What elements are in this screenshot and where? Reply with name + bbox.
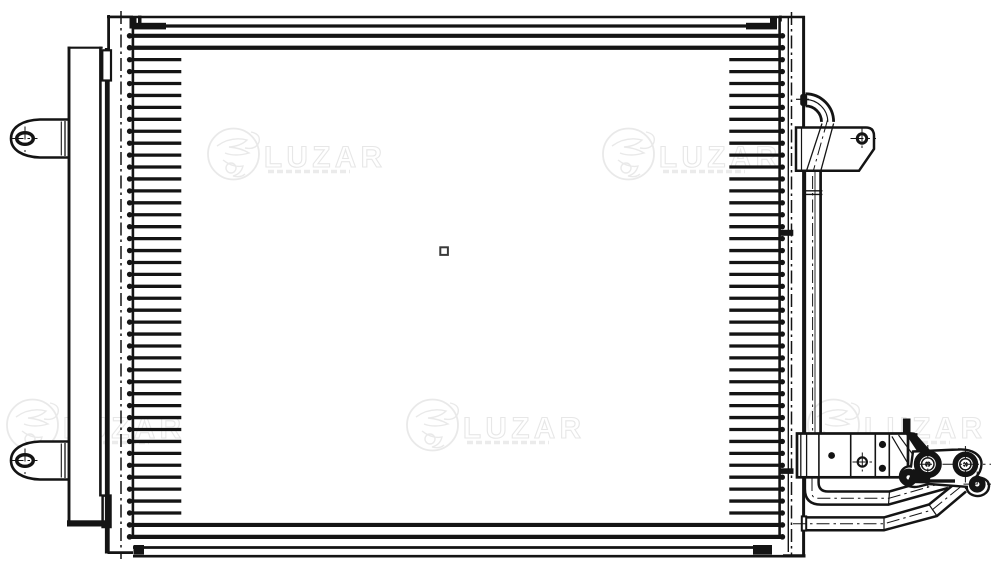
svg-text:LUZAR: LUZAR: [659, 141, 781, 174]
svg-text:LUZAR: LUZAR: [264, 141, 386, 174]
svg-text:LUZAR: LUZAR: [463, 412, 585, 445]
